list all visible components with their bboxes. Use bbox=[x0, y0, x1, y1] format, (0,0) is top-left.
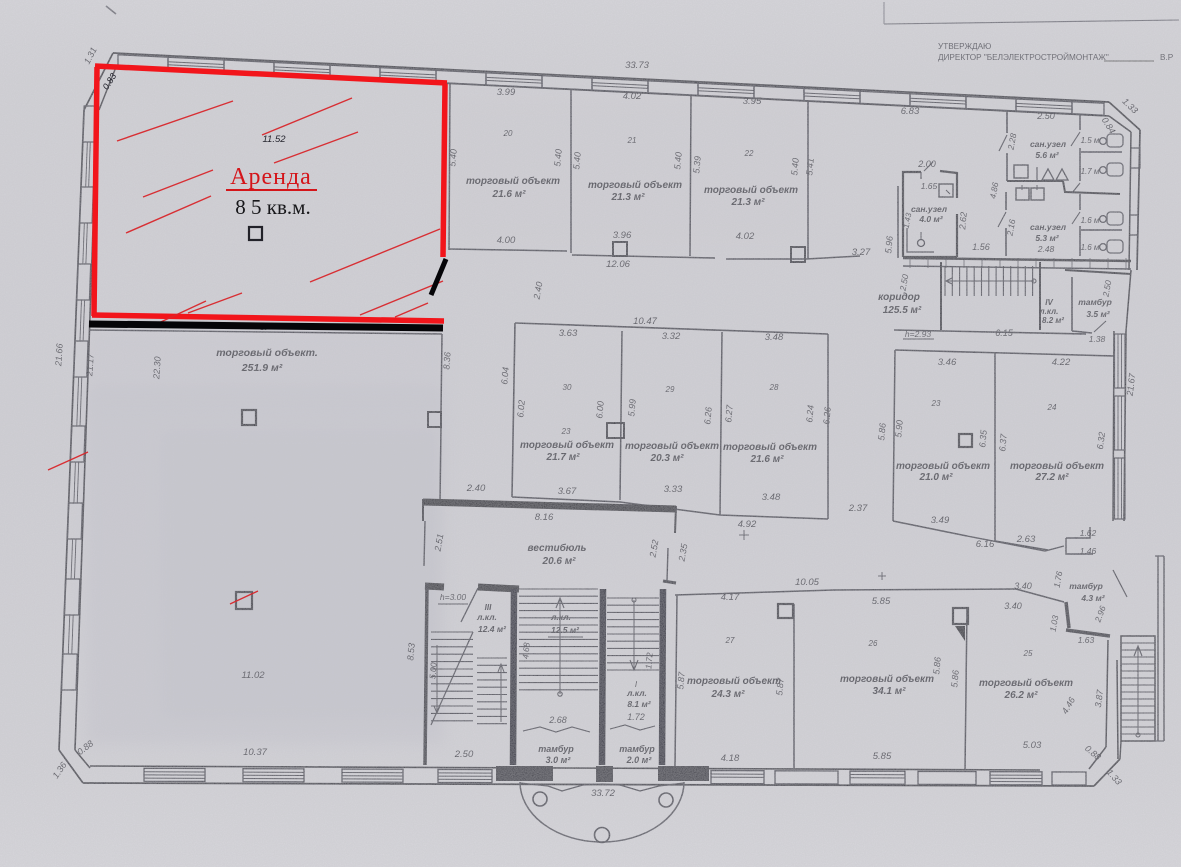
svg-text:Аренда: Аренда bbox=[230, 164, 312, 190]
svg-text:11.52: 11.52 bbox=[262, 134, 286, 145]
svg-text:8 5 кв.м.: 8 5 кв.м. bbox=[235, 195, 310, 219]
